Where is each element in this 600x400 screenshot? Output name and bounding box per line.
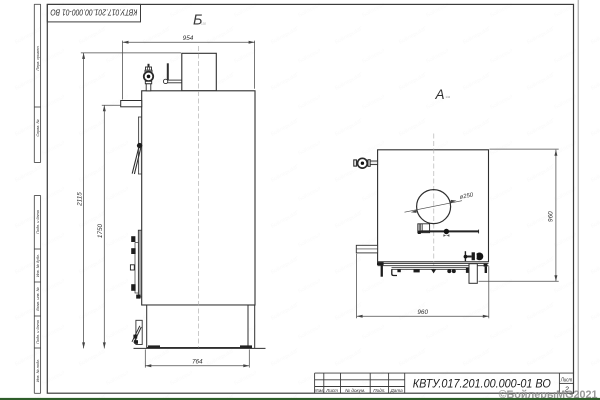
svg-text:Б: Б [193, 13, 202, 29]
svg-text:Взам. инв. №: Взам. инв. № [36, 287, 40, 310]
svg-text:Изм.: Изм. [314, 388, 324, 393]
svg-text:764: 764 [192, 359, 203, 366]
svg-text:1:10: 1:10 [446, 97, 451, 99]
svg-text:Инв. № подл.: Инв. № подл. [36, 359, 40, 383]
svg-text:Перв. примен.: Перв. примен. [36, 45, 40, 70]
svg-text:960: 960 [548, 211, 555, 222]
svg-text:960: 960 [417, 309, 428, 316]
svg-text:А: А [435, 87, 445, 102]
svg-text:Дата: Дата [390, 388, 404, 393]
svg-text:Подп. и дата: Подп. и дата [36, 320, 40, 344]
svg-text:954: 954 [183, 35, 194, 42]
svg-text:№ докум.: № докум. [345, 388, 365, 393]
svg-text:2115: 2115 [76, 192, 83, 207]
svg-text:Лист: Лист [560, 378, 573, 384]
svg-text:Лист: Лист [325, 388, 338, 393]
svg-text:Подп.: Подп. [373, 388, 385, 393]
svg-text:1:10: 1:10 [201, 24, 206, 26]
svg-text:1750: 1750 [97, 223, 104, 238]
svg-text:Справ. №: Справ. № [36, 119, 40, 136]
svg-text:Подп. и дата: Подп. и дата [36, 210, 40, 234]
svg-text:КВТУ.017.201.00.000-01 ВО: КВТУ.017.201.00.000-01 ВО [50, 8, 137, 18]
svg-text:Инв. № дубл.: Инв. № дубл. [36, 254, 40, 277]
